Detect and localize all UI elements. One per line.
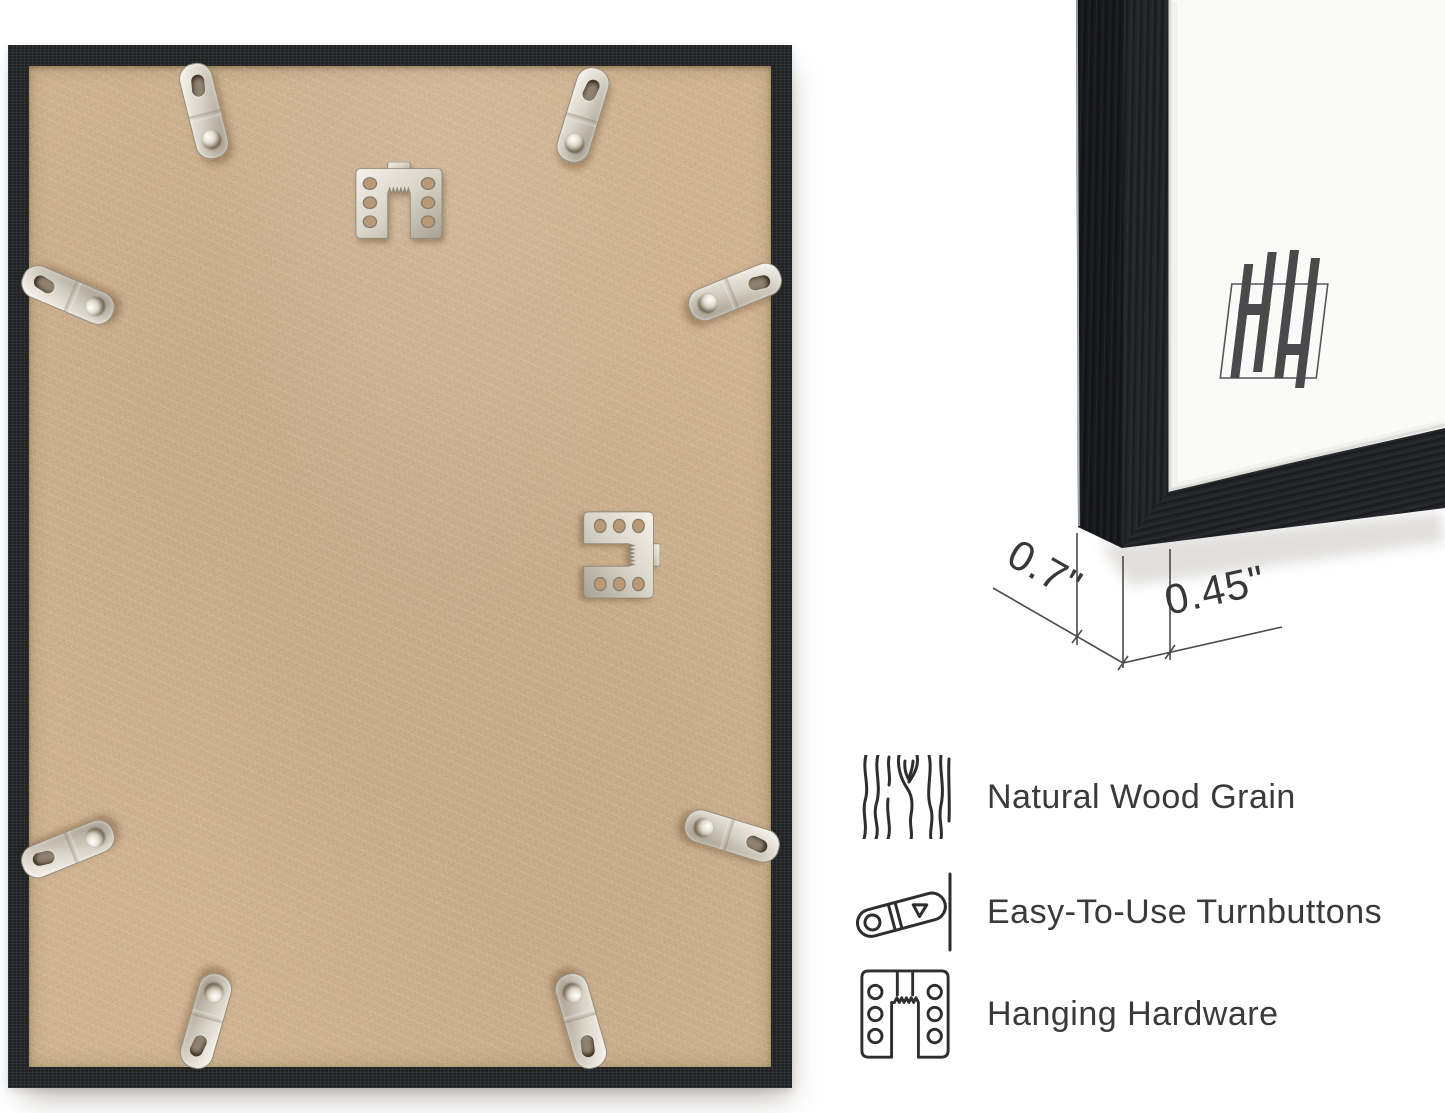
- feature-row-hanging-hardware: Hanging Hardware: [852, 964, 1432, 1064]
- feature-label: Easy-To-Use Turnbuttons: [987, 893, 1382, 932]
- wood-grain-icon: [852, 755, 958, 839]
- feature-row-turnbuttons: Easy-To-Use Turnbuttons: [852, 862, 1432, 962]
- turnbutton-rivet: [563, 131, 587, 155]
- turnbutton-rivet: [561, 981, 585, 1005]
- turnbutton-rivet: [200, 128, 223, 151]
- sawtooth-hanger-top: [354, 162, 444, 240]
- turnbutton-hole: [580, 77, 601, 102]
- turnbutton-rivet: [83, 294, 108, 319]
- feature-label: Hanging Hardware: [987, 995, 1279, 1034]
- feature-list: Natural Wood Grain Easy-To-Use Turnbutto…: [852, 0, 1432, 1113]
- turnbutton-hole: [190, 74, 205, 97]
- turnbutton-icon: [852, 871, 958, 953]
- feature-row-wood-grain: Natural Wood Grain: [852, 747, 1432, 847]
- turnbutton-hole: [188, 1033, 209, 1058]
- turnbutton-hole: [31, 273, 57, 296]
- turnbutton-rivet: [692, 816, 716, 840]
- turnbutton-rivet: [695, 291, 720, 316]
- feature-label: Natural Wood Grain: [987, 778, 1296, 817]
- sawtooth-hanger-middle: [582, 510, 660, 600]
- frame-back-photo: [8, 45, 792, 1088]
- turnbutton-hole: [32, 850, 56, 868]
- turnbutton-hole: [744, 833, 769, 854]
- turnbutton-hole: [580, 1034, 596, 1057]
- turnbutton-rivet: [202, 981, 226, 1005]
- turnbutton-rivet: [83, 826, 108, 851]
- product-infographic: 0.7" 0.45" Natural Wo: [0, 0, 1445, 1113]
- turnbutton-hole: [747, 273, 771, 291]
- hanging-hardware-icon: [852, 968, 958, 1060]
